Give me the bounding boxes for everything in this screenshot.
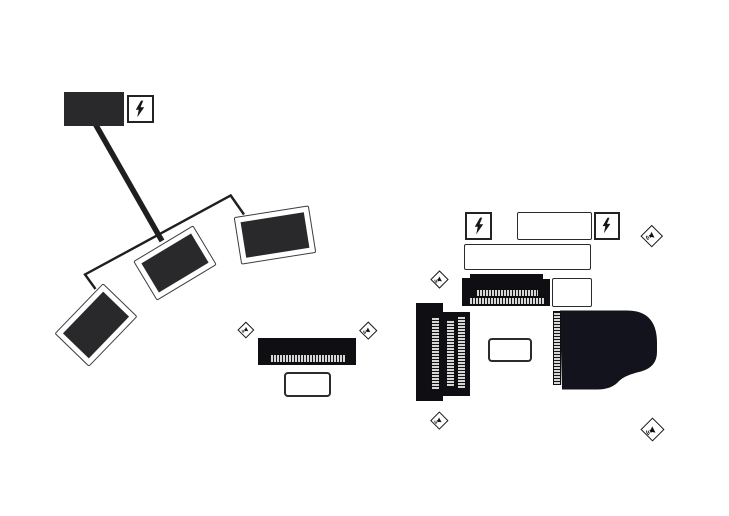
speaker-sound-waves-icon: [363, 325, 374, 336]
label-box-center: [284, 372, 331, 397]
speaker-sound-waves-icon: [241, 324, 251, 335]
power-cable: [93, 120, 162, 241]
keyboard-dual-tier-upper-keys: [475, 289, 539, 297]
speaker-sound-waves-icon: [645, 423, 659, 437]
stage-plot-canvas: [0, 0, 729, 516]
amp-head: [64, 92, 124, 126]
cables-and-piano-layer: [0, 0, 729, 516]
speaker-sound-waves-icon: [434, 274, 445, 285]
patch-box-top: [517, 212, 592, 240]
keyboard-side-short-inner-keys: [446, 319, 456, 387]
label-box-piano: [488, 338, 532, 362]
lightning-bolt-icon: [472, 216, 486, 236]
grand-piano-body: [560, 311, 657, 390]
speaker-sound-waves-icon: [646, 230, 659, 243]
keyboard-side-long-keys: [431, 316, 441, 391]
power-drop-1: [127, 95, 154, 123]
tilted-panel-3-screen: [240, 212, 309, 258]
lightning-bolt-icon: [600, 216, 613, 235]
patch-box-wide: [464, 244, 591, 270]
grand-piano-keys: [553, 311, 561, 385]
power-drop-3: [594, 212, 620, 240]
patch-box-side: [552, 278, 593, 307]
keyboard-dual-tier-lower-keys: [468, 297, 545, 305]
lightning-bolt-icon: [133, 99, 147, 119]
keyboard-center-keys: [269, 354, 346, 363]
speaker-sound-waves-icon: [434, 415, 445, 426]
keyboard-side-short-outer-keys: [457, 315, 466, 389]
power-drop-2: [465, 212, 492, 241]
